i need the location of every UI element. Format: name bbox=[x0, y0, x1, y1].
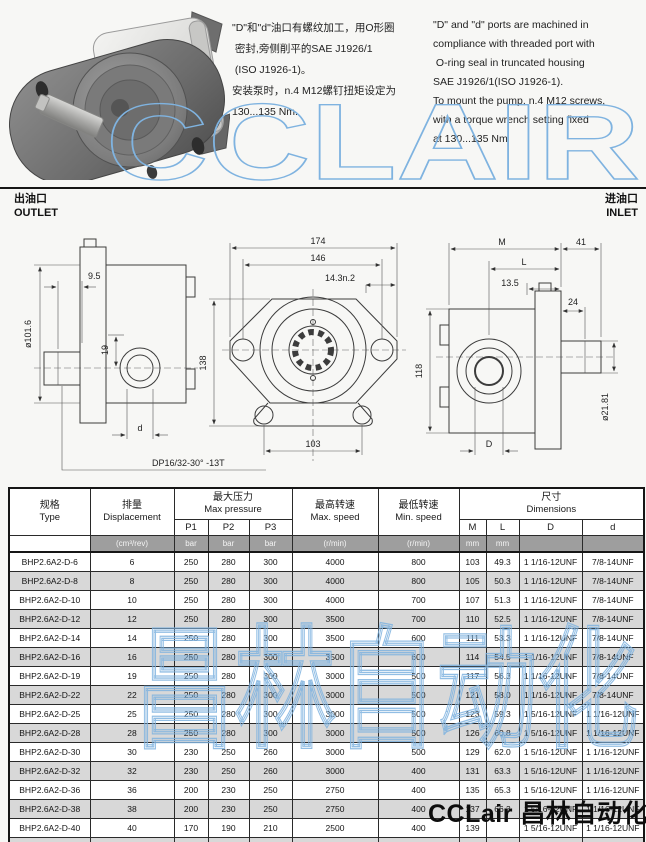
table-cell: 16 bbox=[90, 648, 174, 667]
table-cell: 4000 bbox=[292, 572, 378, 591]
outlet-label-zh: 出油口 bbox=[14, 192, 58, 206]
table-row: BHP2.6A2-D-66250280300400080010349.31 1/… bbox=[9, 552, 644, 572]
note-line: with a torque wrench setting fixed bbox=[433, 111, 643, 130]
table-cell: 60.8 bbox=[486, 724, 519, 743]
table-cell: 280 bbox=[208, 705, 249, 724]
dim-24: 24 bbox=[568, 297, 578, 307]
col-type: 规格 Type bbox=[9, 488, 90, 536]
table-cell: 1 1/16-12UNF bbox=[582, 762, 644, 781]
table-cell: 190 bbox=[208, 838, 249, 842]
table-cell: 250 bbox=[174, 648, 208, 667]
note-line: at 130...135 Nm bbox=[433, 130, 643, 149]
table-cell: 123 bbox=[459, 705, 486, 724]
table-cell: 121 bbox=[459, 686, 486, 705]
table-cell: 210 bbox=[249, 819, 292, 838]
table-row: BHP2.6A2-D-3232230250260300040013163.31 … bbox=[9, 762, 644, 781]
table-cell: 103 bbox=[459, 552, 486, 572]
inlet-label-zh: 进油口 bbox=[605, 192, 638, 206]
unit-cell: mm bbox=[459, 536, 486, 553]
table-row: BHP2.6A2-D-1010250280300400070010751.31 … bbox=[9, 591, 644, 610]
table-cell: 230 bbox=[174, 743, 208, 762]
table-cell: 1 1/16-12UNF bbox=[519, 591, 582, 610]
table-cell: 280 bbox=[208, 610, 249, 629]
unit-cell: (cm³/rev) bbox=[90, 536, 174, 553]
table-row: BHP2.6A2-D-1616250280300350060011454.51 … bbox=[9, 648, 644, 667]
note-english: "D" and "d" ports are machined in compli… bbox=[433, 16, 643, 149]
table-cell: 7/8-14UNF bbox=[582, 591, 644, 610]
table-cell: 300 bbox=[249, 648, 292, 667]
table-cell: 500 bbox=[378, 667, 459, 686]
col-dimensions-en: Dimensions bbox=[460, 504, 644, 516]
pump-photo bbox=[2, 4, 230, 180]
col-p1: P1 bbox=[174, 520, 208, 536]
unit-cell: bar bbox=[208, 536, 249, 553]
unit-cell bbox=[519, 536, 582, 553]
table-cell: 10 bbox=[90, 591, 174, 610]
table-cell: 250 bbox=[174, 610, 208, 629]
table-cell: 52.5 bbox=[486, 610, 519, 629]
note-line: O-ring seal in truncated housing bbox=[433, 54, 643, 73]
col-l: L bbox=[486, 520, 519, 536]
table-cell: 7/8-14UNF bbox=[582, 610, 644, 629]
table-cell: 500 bbox=[378, 724, 459, 743]
table-cell: 56.3 bbox=[486, 667, 519, 686]
col-max-speed-en: Max. speed bbox=[293, 512, 378, 524]
table-row: BHP2.6A2-D-3030230250260300050012962.01 … bbox=[9, 743, 644, 762]
table-cell: 53.3 bbox=[486, 629, 519, 648]
table-cell: 230 bbox=[208, 800, 249, 819]
table-cell: 170 bbox=[174, 819, 208, 838]
unit-cell: bar bbox=[174, 536, 208, 553]
table-cell: BHP2.6A2-D-28 bbox=[9, 724, 90, 743]
spec-table-header: 规格 Type 排量 Displacement 最大压力 Max pressur… bbox=[9, 488, 644, 552]
table-cell: 250 bbox=[174, 552, 208, 572]
table-cell: 170 bbox=[174, 838, 208, 842]
table-cell: 250 bbox=[174, 629, 208, 648]
table-cell: 250 bbox=[174, 591, 208, 610]
table-cell: 144 bbox=[459, 838, 486, 842]
table-cell: 117 bbox=[459, 667, 486, 686]
table-cell: 3000 bbox=[292, 743, 378, 762]
table-cell: 50.3 bbox=[486, 572, 519, 591]
table-cell: 300 bbox=[249, 572, 292, 591]
col-p2: P2 bbox=[208, 520, 249, 536]
col-max-speed: 最高转速 Max. speed bbox=[292, 488, 378, 536]
table-cell: BHP2.6A2-D-44 bbox=[9, 838, 90, 842]
dim-M: M bbox=[498, 237, 506, 247]
table-cell: 129 bbox=[459, 743, 486, 762]
table-cell: 126 bbox=[459, 724, 486, 743]
table-cell: 25 bbox=[90, 705, 174, 724]
col-min-speed: 最低转速 Min. speed bbox=[378, 488, 459, 536]
table-cell: 190 bbox=[208, 819, 249, 838]
table-cell: 400 bbox=[378, 838, 459, 842]
table-cell: 280 bbox=[208, 591, 249, 610]
table-cell: 1 1/16-12UNF bbox=[582, 838, 644, 842]
table-cell: 44 bbox=[90, 838, 174, 842]
table-cell: 700 bbox=[378, 591, 459, 610]
table-cell: 250 bbox=[174, 705, 208, 724]
col-max-pressure: 最大压力 Max pressure bbox=[174, 488, 292, 520]
table-cell: 7/8-14UNF bbox=[582, 552, 644, 572]
dim-13-5: 13.5 bbox=[501, 278, 519, 288]
dim-dia21-81: ø21.81 bbox=[600, 393, 610, 421]
table-cell: 32 bbox=[90, 762, 174, 781]
table-cell: 300 bbox=[249, 705, 292, 724]
table-cell: 300 bbox=[249, 552, 292, 572]
table-cell: 110 bbox=[459, 610, 486, 629]
note-line: SAE J1926/1(ISO J1926-1). bbox=[433, 73, 643, 92]
table-cell: 250 bbox=[174, 724, 208, 743]
table-cell: 260 bbox=[249, 743, 292, 762]
table-cell: 14 bbox=[90, 629, 174, 648]
table-cell: 300 bbox=[249, 610, 292, 629]
table-cell: BHP2.6A2-D-22 bbox=[9, 686, 90, 705]
table-cell: 7/8-14UNF bbox=[582, 667, 644, 686]
table-cell: 1 1/16-12UNF bbox=[519, 552, 582, 572]
spec-table: 规格 Type 排量 Displacement 最大压力 Max pressur… bbox=[8, 487, 645, 842]
table-cell: 1 1/16-12UNF bbox=[582, 724, 644, 743]
table-cell: 2500 bbox=[292, 838, 378, 842]
dim-D-upper: D bbox=[486, 439, 493, 449]
dim-146: 146 bbox=[310, 253, 325, 263]
table-cell: BHP2.6A2-D-25 bbox=[9, 705, 90, 724]
table-row: BHP2.6A2-D-2222250280300300050012158.01 … bbox=[9, 686, 644, 705]
table-cell: 280 bbox=[208, 648, 249, 667]
table-cell: 300 bbox=[249, 667, 292, 686]
table-cell: 51.3 bbox=[486, 591, 519, 610]
table-row: BHP2.6A2-D-4444170190210250040014469.51 … bbox=[9, 838, 644, 842]
table-cell: 3000 bbox=[292, 667, 378, 686]
table-cell: 1 1/16-12UNF bbox=[519, 610, 582, 629]
table-cell: BHP2.6A2-D-30 bbox=[9, 743, 90, 762]
table-cell: 54.5 bbox=[486, 648, 519, 667]
table-cell: 62.0 bbox=[486, 743, 519, 762]
table-cell: 800 bbox=[378, 572, 459, 591]
table-cell: 300 bbox=[249, 686, 292, 705]
dim-L: L bbox=[521, 257, 526, 267]
col-min-speed-en: Min. speed bbox=[379, 512, 459, 524]
col-min-speed-zh: 最低转速 bbox=[379, 500, 459, 512]
table-cell: BHP2.6A2-D-36 bbox=[9, 781, 90, 800]
table-cell: 280 bbox=[208, 724, 249, 743]
datasheet-page: "D"和"d"油口有螺纹加工，用O形圈 密封,旁侧削平的SAE J1926/1 … bbox=[0, 0, 646, 842]
table-cell: 30 bbox=[90, 743, 174, 762]
table-cell: 49.3 bbox=[486, 552, 519, 572]
table-cell: 300 bbox=[249, 629, 292, 648]
table-cell: 250 bbox=[208, 743, 249, 762]
col-dimensions-zh: 尺寸 bbox=[460, 492, 644, 504]
col-d-upper: D bbox=[519, 520, 582, 536]
note-line: To mount the pump, n.4 M12 screws, bbox=[433, 92, 643, 111]
table-row: BHP2.6A2-D-2525250280300300050012359.31 … bbox=[9, 705, 644, 724]
unit-cell: mm bbox=[486, 536, 519, 553]
table-cell: 500 bbox=[378, 705, 459, 724]
view-front: 174 146 14.3n.2 138 103 bbox=[198, 236, 406, 461]
table-cell: 58.0 bbox=[486, 686, 519, 705]
table-cell: 3500 bbox=[292, 648, 378, 667]
table-cell: BHP2.6A2-D-12 bbox=[9, 610, 90, 629]
unit-cell bbox=[582, 536, 644, 553]
table-cell: 36 bbox=[90, 781, 174, 800]
table-cell: 38 bbox=[90, 800, 174, 819]
col-displacement: 排量 Displacement bbox=[90, 488, 174, 536]
table-cell: 1 5/16-12UNF bbox=[519, 724, 582, 743]
table-cell: 6 bbox=[90, 552, 174, 572]
col-m: M bbox=[459, 520, 486, 536]
table-cell: 12 bbox=[90, 610, 174, 629]
table-row: BHP2.6A2-D-88250280300400080010550.31 1/… bbox=[9, 572, 644, 591]
table-cell: 200 bbox=[174, 781, 208, 800]
table-cell: 1 5/16-12UNF bbox=[519, 762, 582, 781]
footer-watermark: CCLair 昌林自动化 bbox=[428, 794, 646, 830]
table-cell: 280 bbox=[208, 629, 249, 648]
col-displacement-zh: 排量 bbox=[91, 500, 174, 512]
col-dimensions: 尺寸 Dimensions bbox=[459, 488, 644, 520]
table-cell: 500 bbox=[378, 743, 459, 762]
table-cell: 107 bbox=[459, 591, 486, 610]
note-line: "D"和"d"油口有螺纹加工，用O形圈 bbox=[232, 18, 432, 39]
table-cell: 250 bbox=[208, 762, 249, 781]
table-cell: 1 1/16-12UNF bbox=[519, 648, 582, 667]
dim-19: 19 bbox=[100, 345, 110, 355]
note-line: "D" and "d" ports are machined in bbox=[433, 16, 643, 35]
col-p3: P3 bbox=[249, 520, 292, 536]
table-cell: 2750 bbox=[292, 800, 378, 819]
col-displacement-en: Displacement bbox=[91, 512, 174, 524]
table-cell: 114 bbox=[459, 648, 486, 667]
spline-spec-label: DP16/32-30° -13T bbox=[152, 458, 225, 468]
table-cell: BHP2.6A2-D-6 bbox=[9, 552, 90, 572]
table-cell: 1 1/16-12UNF bbox=[519, 686, 582, 705]
col-max-pressure-en: Max pressure bbox=[175, 504, 292, 516]
dim-118: 118 bbox=[414, 364, 424, 378]
table-cell: 800 bbox=[378, 552, 459, 572]
table-cell: 210 bbox=[249, 838, 292, 842]
dim-d-lower: d bbox=[137, 423, 142, 433]
table-cell: 131 bbox=[459, 762, 486, 781]
table-cell: 250 bbox=[249, 800, 292, 819]
note-chinese: "D"和"d"油口有螺纹加工，用O形圈 密封,旁侧削平的SAE J1926/1 … bbox=[232, 18, 432, 123]
table-cell: 600 bbox=[378, 629, 459, 648]
table-cell: BHP2.6A2-D-8 bbox=[9, 572, 90, 591]
table-row: BHP2.6A2-D-1414250280300350060011153.31 … bbox=[9, 629, 644, 648]
unit-cell: (r/min) bbox=[378, 536, 459, 553]
table-cell: 300 bbox=[249, 591, 292, 610]
view-inlet-side: M 41 L 13.5 24 ø21.81 11 bbox=[414, 237, 618, 455]
table-cell: BHP2.6A2-D-38 bbox=[9, 800, 90, 819]
table-cell: 4000 bbox=[292, 591, 378, 610]
dim-14-3: 14.3n.2 bbox=[325, 273, 355, 283]
dim-138: 138 bbox=[198, 355, 208, 370]
table-cell: 280 bbox=[208, 667, 249, 686]
table-cell: 230 bbox=[174, 762, 208, 781]
note-line: compliance with threaded port with bbox=[433, 35, 643, 54]
col-max-speed-zh: 最高转速 bbox=[293, 500, 378, 512]
dim-41: 41 bbox=[576, 237, 586, 247]
table-cell: 1 5/16-12UNF bbox=[519, 743, 582, 762]
table-cell: 3000 bbox=[292, 705, 378, 724]
table-cell: 700 bbox=[378, 610, 459, 629]
table-cell: 105 bbox=[459, 572, 486, 591]
col-max-pressure-zh: 最大压力 bbox=[175, 492, 292, 504]
note-line: 安装泵时，n.4 M12螺钉扭矩设定为 bbox=[232, 81, 432, 102]
table-cell: 19 bbox=[90, 667, 174, 686]
col-type-zh: 规格 bbox=[10, 500, 90, 512]
table-cell: 7/8-14UNF bbox=[582, 572, 644, 591]
table-cell: 3500 bbox=[292, 629, 378, 648]
technical-drawing: 9.5 ø101.6 19 d DP16/32-30° -13T bbox=[0, 213, 646, 487]
table-cell: 28 bbox=[90, 724, 174, 743]
dim-dia101-6: ø101.6 bbox=[23, 320, 33, 348]
table-cell: 59.3 bbox=[486, 705, 519, 724]
units-row: (cm³/rev) bar bar bar (r/min) (r/min) mm… bbox=[9, 536, 644, 553]
table-cell: 1 1/16-12UNF bbox=[519, 667, 582, 686]
table-row: BHP2.6A2-D-2828250280300300050012660.81 … bbox=[9, 724, 644, 743]
table-cell: 1 1/16-12UNF bbox=[519, 629, 582, 648]
table-cell: 7/8-14UNF bbox=[582, 686, 644, 705]
table-cell: 300 bbox=[249, 724, 292, 743]
table-cell: 8 bbox=[90, 572, 174, 591]
table-cell: 260 bbox=[249, 762, 292, 781]
table-cell: 250 bbox=[174, 572, 208, 591]
table-cell: BHP2.6A2-D-14 bbox=[9, 629, 90, 648]
table-cell: 7/8-14UNF bbox=[582, 629, 644, 648]
divider-line bbox=[0, 187, 646, 189]
table-cell: 280 bbox=[208, 552, 249, 572]
dim-9-5: 9.5 bbox=[88, 271, 101, 281]
col-type-en: Type bbox=[10, 512, 90, 524]
unit-cell bbox=[9, 536, 90, 553]
table-cell: 1 5/16-12UNF bbox=[519, 705, 582, 724]
table-row: BHP2.6A2-D-1919250280300300050011756.31 … bbox=[9, 667, 644, 686]
note-line: 密封,旁侧削平的SAE J1926/1 bbox=[232, 39, 432, 60]
table-cell: BHP2.6A2-D-10 bbox=[9, 591, 90, 610]
table-cell: 3500 bbox=[292, 610, 378, 629]
col-d-lower: d bbox=[582, 520, 644, 536]
table-cell: BHP2.6A2-D-40 bbox=[9, 819, 90, 838]
table-cell: 250 bbox=[174, 667, 208, 686]
table-cell: 230 bbox=[208, 781, 249, 800]
table-cell: 250 bbox=[174, 686, 208, 705]
table-cell: 4000 bbox=[292, 552, 378, 572]
table-cell: 400 bbox=[378, 762, 459, 781]
table-row: BHP2.6A2-D-1212250280300350070011052.51 … bbox=[9, 610, 644, 629]
table-cell: 250 bbox=[249, 781, 292, 800]
table-cell: 1 1/16-12UNF bbox=[582, 743, 644, 762]
table-cell: 1 1/16-12UNF bbox=[582, 705, 644, 724]
table-cell: 40 bbox=[90, 819, 174, 838]
table-cell: 69.5 bbox=[486, 838, 519, 842]
table-cell: BHP2.6A2-D-19 bbox=[9, 667, 90, 686]
table-cell: 280 bbox=[208, 572, 249, 591]
table-cell: 3000 bbox=[292, 686, 378, 705]
table-cell: 1 1/16-12UNF bbox=[519, 572, 582, 591]
note-line: (ISO J1926-1)。 bbox=[232, 60, 432, 81]
unit-cell: (r/min) bbox=[292, 536, 378, 553]
table-cell: 111 bbox=[459, 629, 486, 648]
table-cell: 22 bbox=[90, 686, 174, 705]
table-cell: 500 bbox=[378, 686, 459, 705]
table-cell: 63.3 bbox=[486, 762, 519, 781]
dim-174: 174 bbox=[310, 236, 325, 246]
table-cell: 2750 bbox=[292, 781, 378, 800]
unit-cell: bar bbox=[249, 536, 292, 553]
table-cell: 3000 bbox=[292, 724, 378, 743]
note-line: 130...135 Nm. bbox=[232, 102, 432, 123]
table-cell: BHP2.6A2-D-32 bbox=[9, 762, 90, 781]
table-cell: 280 bbox=[208, 686, 249, 705]
dim-103: 103 bbox=[305, 439, 320, 449]
table-cell: BHP2.6A2-D-16 bbox=[9, 648, 90, 667]
table-cell: 600 bbox=[378, 648, 459, 667]
table-cell: 3000 bbox=[292, 762, 378, 781]
table-cell: 1 5/16-12UNF bbox=[519, 838, 582, 842]
table-cell: 2500 bbox=[292, 819, 378, 838]
table-cell: 7/8-14UNF bbox=[582, 648, 644, 667]
table-cell: 200 bbox=[174, 800, 208, 819]
